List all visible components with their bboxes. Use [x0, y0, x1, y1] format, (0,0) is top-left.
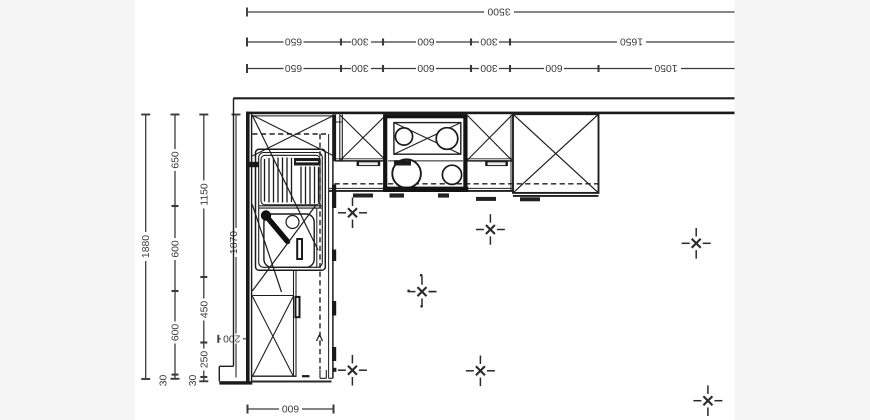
svg-text:450: 450 [199, 301, 210, 319]
svg-text:600: 600 [171, 324, 182, 342]
svg-text:200: 200 [223, 332, 241, 343]
svg-text:250: 250 [199, 351, 210, 369]
svg-text:1150: 1150 [199, 183, 210, 206]
svg-text:300: 300 [351, 36, 369, 47]
svg-text:1870: 1870 [229, 231, 240, 254]
svg-text:300: 300 [480, 36, 498, 47]
svg-text:650: 650 [171, 151, 182, 169]
svg-text:600: 600 [171, 240, 182, 258]
svg-text:30: 30 [159, 375, 170, 387]
svg-text:650: 650 [285, 62, 303, 73]
svg-text:1880: 1880 [141, 235, 152, 258]
svg-text:3500: 3500 [487, 6, 510, 17]
svg-text:600: 600 [417, 36, 435, 47]
svg-text:1650: 1650 [620, 36, 643, 47]
svg-text:600: 600 [545, 62, 563, 73]
svg-text:300: 300 [351, 62, 369, 73]
svg-text:600: 600 [417, 62, 435, 73]
svg-text:600: 600 [282, 403, 300, 414]
svg-text:300: 300 [480, 62, 498, 73]
svg-text:650: 650 [285, 36, 303, 47]
svg-text:1050: 1050 [654, 62, 677, 73]
svg-text:30: 30 [188, 375, 199, 387]
